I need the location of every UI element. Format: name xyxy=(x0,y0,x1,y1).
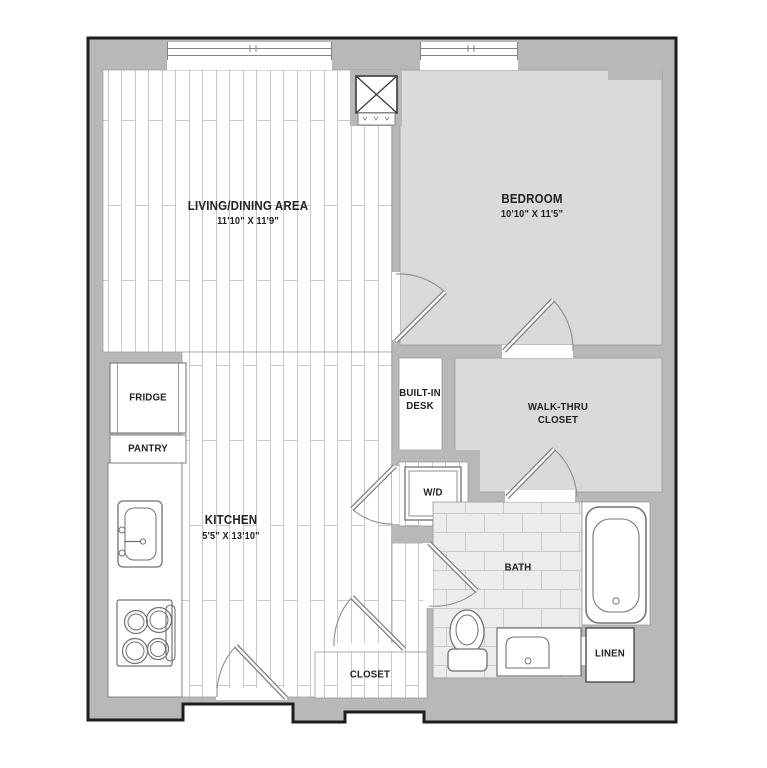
window-living xyxy=(167,42,332,70)
label-fridge: FRIDGE xyxy=(129,391,167,404)
label-washer-dryer: W/D xyxy=(423,486,442,499)
label-linen: LINEN xyxy=(595,647,625,660)
room-label-living: LIVING/DINING AREA xyxy=(188,199,308,215)
label-walk-thru-closet: WALK-THRU CLOSET xyxy=(510,401,606,427)
window-bedroom xyxy=(420,42,518,70)
floor-plan: LIVING/DINING AREA 11'10" X 11'9" BEDROO… xyxy=(0,0,767,768)
room-label-bedroom: BEDROOM xyxy=(501,192,562,208)
bathtub xyxy=(586,507,646,623)
kitchen-counter xyxy=(108,463,182,697)
vanity-sink xyxy=(497,628,581,676)
label-closet: CLOSET xyxy=(350,668,390,681)
room-dims-living: 11'10" X 11'9" xyxy=(217,216,279,229)
floor-plan-drawing xyxy=(0,0,767,768)
label-bath: BATH xyxy=(505,561,532,574)
label-pantry: PANTRY xyxy=(128,442,168,455)
room-dims-kitchen: 5'5" X 13'10" xyxy=(202,531,259,544)
toilet xyxy=(448,610,487,671)
label-built-in-desk: BUILT-IN DESK xyxy=(390,387,451,413)
room-label-kitchen: KITCHEN xyxy=(205,513,257,529)
hvac-unit xyxy=(350,70,402,126)
room-dims-bedroom: 10'10" X 11'5" xyxy=(501,209,563,222)
